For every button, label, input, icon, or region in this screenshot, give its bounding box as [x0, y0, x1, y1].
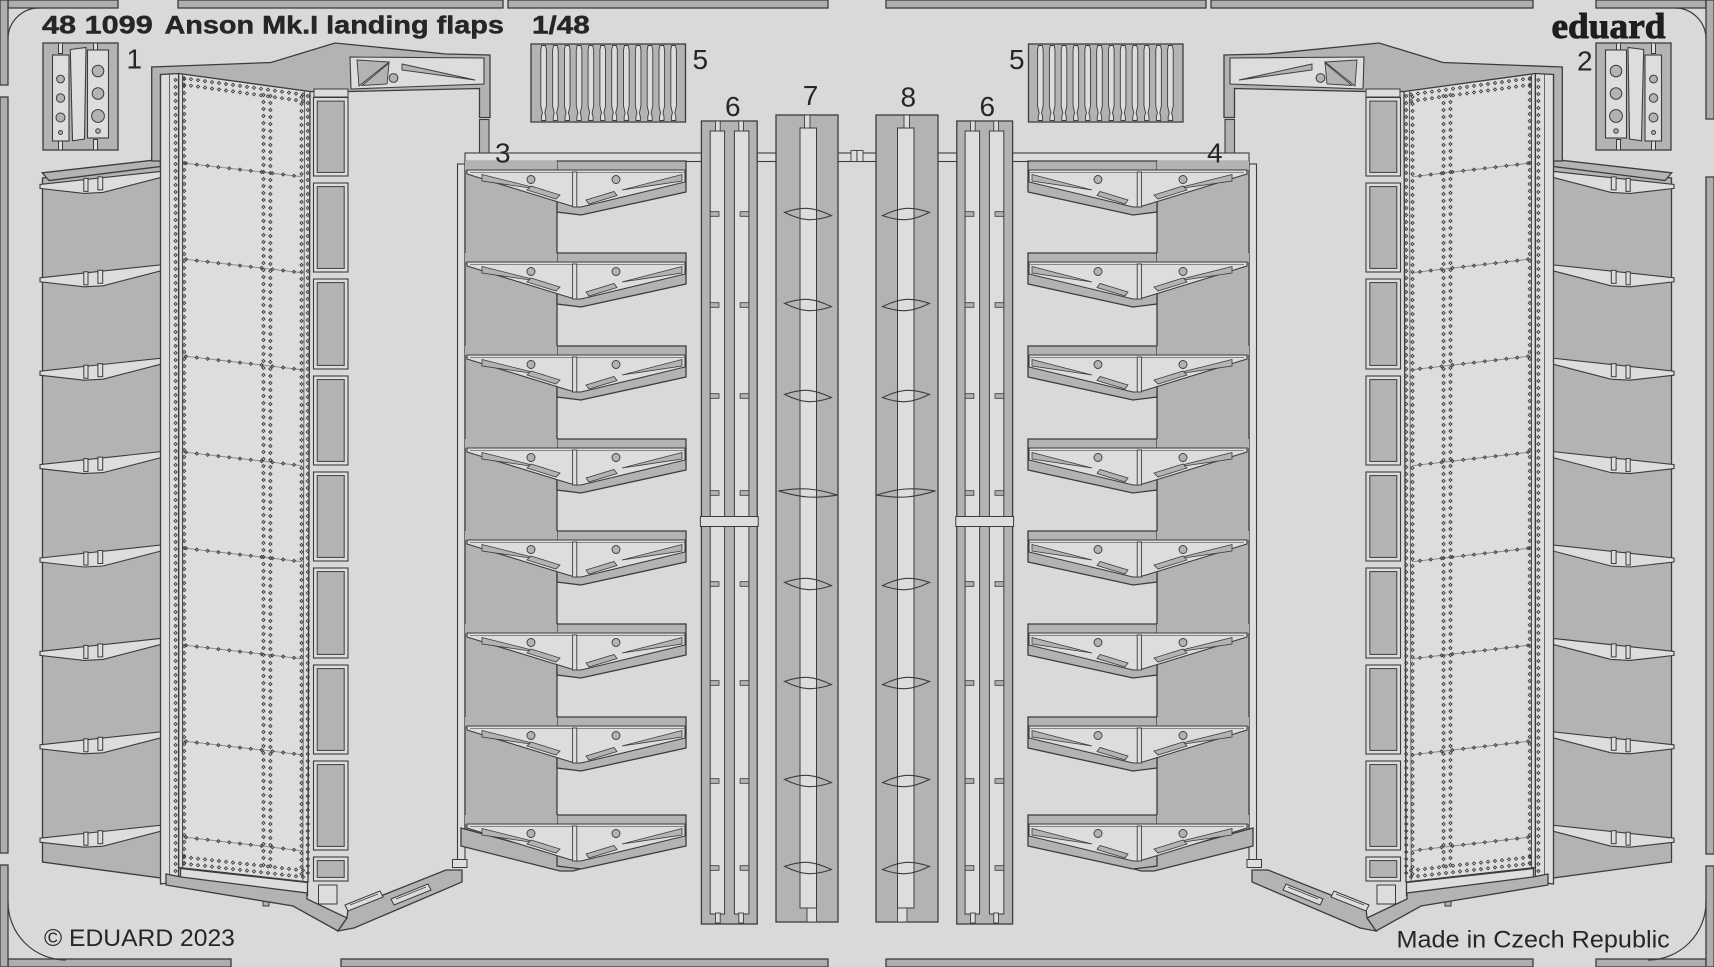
svg-text:© EDUARD 2023: © EDUARD 2023 — [44, 925, 235, 952]
svg-text:1: 1 — [127, 43, 143, 74]
svg-text:2: 2 — [1577, 46, 1593, 77]
svg-text:5: 5 — [1009, 44, 1025, 75]
svg-text:6: 6 — [725, 91, 741, 122]
svg-text:Made in Czech Republic: Made in Czech Republic — [1397, 927, 1670, 953]
svg-text:48 1099: 48 1099 — [42, 11, 153, 38]
svg-text:eduard: eduard — [1552, 7, 1666, 46]
svg-text:1/48: 1/48 — [532, 11, 590, 39]
svg-text:7: 7 — [803, 80, 819, 111]
svg-text:8: 8 — [901, 82, 917, 113]
svg-text:4: 4 — [1207, 138, 1223, 169]
svg-text:5: 5 — [693, 44, 709, 75]
svg-text:6: 6 — [980, 91, 996, 122]
svg-text:Anson Mk.I landing flaps: Anson Mk.I landing flaps — [165, 12, 504, 40]
svg-text:3: 3 — [495, 138, 511, 169]
